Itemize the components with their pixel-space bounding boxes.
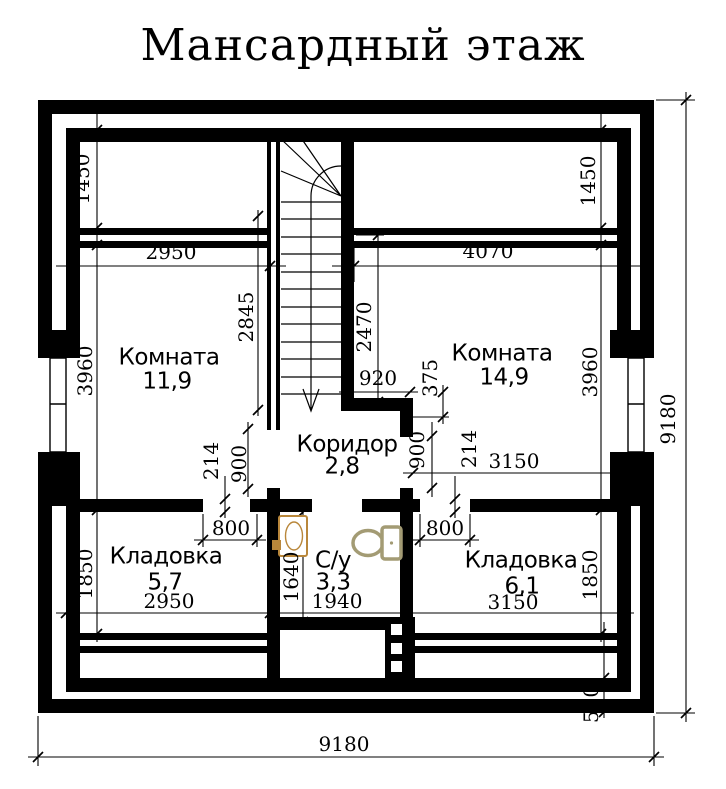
- dim-door-left: 900: [229, 445, 249, 483]
- toilet-icon: [353, 527, 401, 559]
- dim-room-right-width: 4070: [463, 241, 514, 261]
- room-left-area: 11,9: [142, 371, 191, 394]
- dim-stair-width: 920: [359, 368, 397, 388]
- staircase: [281, 132, 341, 411]
- room-right-area: 14,9: [479, 367, 528, 390]
- dim-dormer-right: 1450: [578, 156, 598, 207]
- dim-eaves: 500: [581, 685, 601, 723]
- plan-drawing: [0, 0, 726, 789]
- dim-wall-right: 214: [459, 430, 479, 468]
- dim-bath-depth: 1640: [281, 552, 301, 603]
- stair-direction-line: [303, 196, 319, 411]
- dim-stair-well: 2470: [354, 302, 374, 353]
- corridor-area: 2,8: [324, 456, 359, 479]
- dim-total-width: 9180: [319, 734, 370, 754]
- chimney-flue: [385, 617, 415, 680]
- dim-storage-right-width: 3150: [488, 592, 539, 612]
- dim-total-depth: 9180: [658, 394, 678, 445]
- dim-stair-return: 375: [420, 359, 440, 397]
- dim-room-right-depth: 3960: [580, 347, 600, 398]
- dim-storage-right-door: 800: [426, 518, 464, 538]
- room-left-label: Комната: [119, 347, 220, 370]
- storage-right-label: Кладовка: [465, 550, 578, 573]
- dim-dormer-left: 1450: [72, 154, 92, 205]
- floor-plan: Мансардный этаж Комната 11,9 Комната 14,…: [0, 0, 726, 789]
- dim-room-left-width: 2950: [146, 242, 197, 262]
- room-right-label: Комната: [452, 343, 553, 366]
- window-right: [628, 358, 644, 452]
- dim-storage-left-depth: 1850: [75, 549, 95, 600]
- dim-storage-left-width: 2950: [144, 591, 195, 611]
- storage-left-label: Кладовка: [110, 546, 223, 569]
- dim-room-right-lower-width: 3150: [489, 451, 540, 471]
- dim-storage-right-depth: 1850: [580, 550, 600, 601]
- dim-door-right: 900: [407, 431, 427, 469]
- page-title: Мансардный этаж: [140, 24, 585, 68]
- dim-storage-left-door: 800: [212, 518, 250, 538]
- window-left: [50, 358, 66, 452]
- dim-wall-left: 214: [201, 442, 221, 480]
- dim-bath-width: 1940: [312, 591, 363, 611]
- dim-stair-run: 2845: [236, 292, 256, 343]
- dim-room-left-depth: 3960: [75, 346, 95, 397]
